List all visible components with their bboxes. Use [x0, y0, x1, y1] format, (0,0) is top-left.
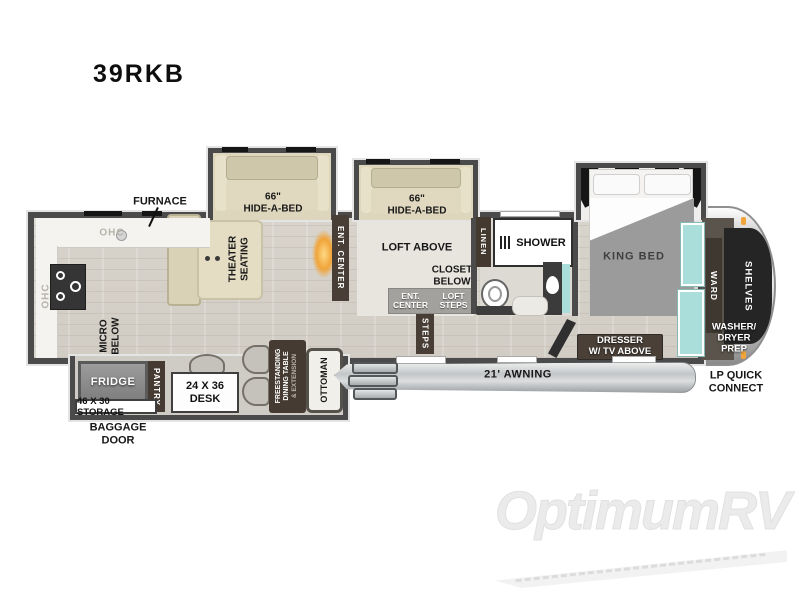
storage-label: 46 X 30 STORAGE — [77, 396, 155, 418]
dresser-label: DRESSER W/ TV ABOVE — [589, 336, 651, 358]
window-icon — [612, 356, 656, 363]
dining-chair-icon — [242, 377, 270, 406]
entry-door-gap — [396, 356, 446, 364]
burner-icon — [70, 281, 81, 292]
ohc-left-label: OHC — [40, 283, 52, 308]
fridge-label: FRIDGE — [91, 376, 136, 388]
sofa-armrest-right — [317, 155, 329, 211]
dining-table-sub: & EXTENSION — [291, 349, 298, 404]
desk-label: 24 X 36 DESK — [186, 380, 224, 405]
awning-label: 21' AWNING — [484, 369, 552, 382]
wardrobe-teal-panel — [678, 290, 704, 356]
step-platform — [512, 296, 548, 316]
pillow-icon — [644, 174, 691, 195]
window-icon — [366, 159, 390, 164]
storage-compartment: 46 X 30 STORAGE — [75, 399, 157, 414]
bath-teal-panel — [562, 264, 570, 313]
window-icon — [222, 147, 248, 152]
sofa-armrest-right — [460, 167, 471, 213]
dining-chair-icon — [242, 345, 270, 374]
theater-seating-label: THEATER SEATING — [228, 236, 251, 282]
dining-table-main: FREESTANDING DINING TABLE — [275, 349, 290, 404]
baggage-door-label: BAGGAGE DOOR — [90, 421, 147, 446]
wardrobe-teal-panel — [681, 223, 704, 286]
ottoman-label: OTTOMAN — [319, 357, 329, 402]
ent-center-living-label: ENT. CENTER — [336, 226, 345, 289]
watermark: OptimumRV — [495, 484, 795, 594]
entry-step — [352, 362, 398, 374]
sink-icon — [546, 276, 559, 294]
steps-label: STEPS — [421, 318, 430, 349]
king-bed-label: KING BED — [603, 251, 665, 264]
watermark-road-icon — [495, 546, 787, 588]
window-icon — [497, 356, 537, 363]
sofa-backrest — [226, 156, 318, 180]
shelves-label: SHELVES — [743, 261, 754, 312]
toilet-seat — [488, 286, 502, 302]
ward-cabinet: WARD — [706, 238, 722, 333]
linen-cabinet: LINEN — [476, 217, 491, 267]
page-title: 39RKB — [93, 60, 185, 89]
cupholder-icon — [215, 256, 220, 261]
lp-quick-connect-label: LP QUICK CONNECT — [709, 369, 763, 394]
loft-ent-center-cabinet: ENT. CENTER LOFT STEPS — [388, 288, 476, 314]
toilet-icon — [481, 279, 509, 309]
loft-hide-a-bed-label: 66" HIDE-A-BED — [388, 194, 447, 217]
marker-light-icon — [741, 217, 746, 225]
shower-grate-icon — [500, 236, 511, 249]
ward-label: WARD — [709, 271, 719, 301]
ent-center-living: ENT. CENTER — [332, 215, 349, 301]
entry-steps-strip: STEPS — [416, 314, 434, 354]
shower: SHOWER — [493, 218, 573, 267]
window-icon — [500, 211, 560, 217]
cupholder-icon — [205, 256, 210, 261]
watermark-text: OptimumRV — [495, 484, 795, 538]
window-icon — [286, 147, 316, 152]
floorplan-canvas: 39RKB 66" HIDE-A-BED THEATER SEATING ENT… — [0, 0, 800, 600]
loft-above-label: LOFT ABOVE — [382, 242, 452, 255]
range-cooktop — [50, 264, 86, 310]
micro-below-label: MICRO BELOW — [99, 317, 122, 354]
ohc-top-label: OHC — [99, 227, 124, 239]
furnace-label: FURNACE — [133, 196, 187, 209]
window-icon — [430, 159, 460, 164]
entry-step — [348, 375, 398, 387]
sofa-backrest — [371, 168, 461, 188]
window-icon — [84, 211, 122, 216]
burner-icon — [56, 271, 65, 280]
burner-icon — [56, 292, 65, 301]
pillow-icon — [593, 174, 640, 195]
linen-label: LINEN — [479, 228, 488, 256]
desk: 24 X 36 DESK — [171, 372, 239, 413]
entry-step — [353, 388, 397, 400]
loft-steps-label: LOFT STEPS — [432, 289, 475, 313]
ent-center-loft-label: ENT. CENTER — [389, 289, 432, 313]
closet-below-label: CLOSET BELOW — [432, 265, 473, 288]
washer-dryer-prep-label: WASHER/ DRYER PREP — [712, 323, 756, 356]
living-hide-a-bed-label: 66" HIDE-A-BED — [244, 192, 303, 215]
shower-label: SHOWER — [516, 237, 566, 249]
dining-table-label: FREESTANDING DINING TABLE & EXTENSION — [267, 349, 307, 404]
